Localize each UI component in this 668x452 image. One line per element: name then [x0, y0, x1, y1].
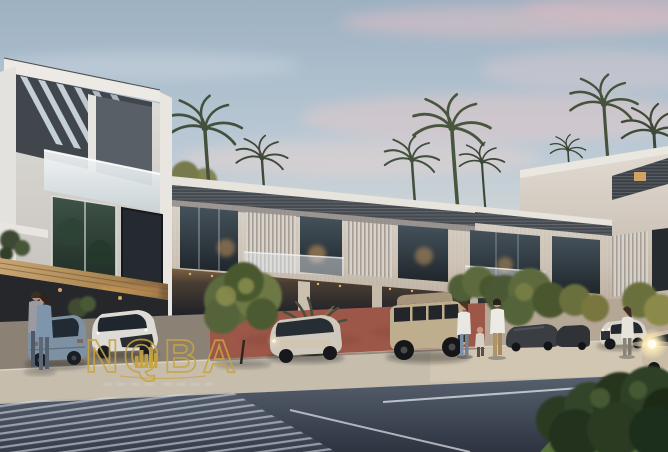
car-silver-suv	[268, 315, 344, 363]
pergola-warm-light	[634, 172, 646, 181]
watermark-text: NQBA	[85, 330, 240, 382]
render-canvas: NQBA	[0, 0, 668, 452]
window-glass	[180, 206, 238, 272]
right-block-window	[652, 228, 668, 292]
architectural-render: NQBA	[0, 0, 668, 452]
watermark: NQBA	[85, 330, 240, 386]
louvre-screen	[348, 221, 392, 278]
lit-interior-glow	[217, 239, 235, 257]
